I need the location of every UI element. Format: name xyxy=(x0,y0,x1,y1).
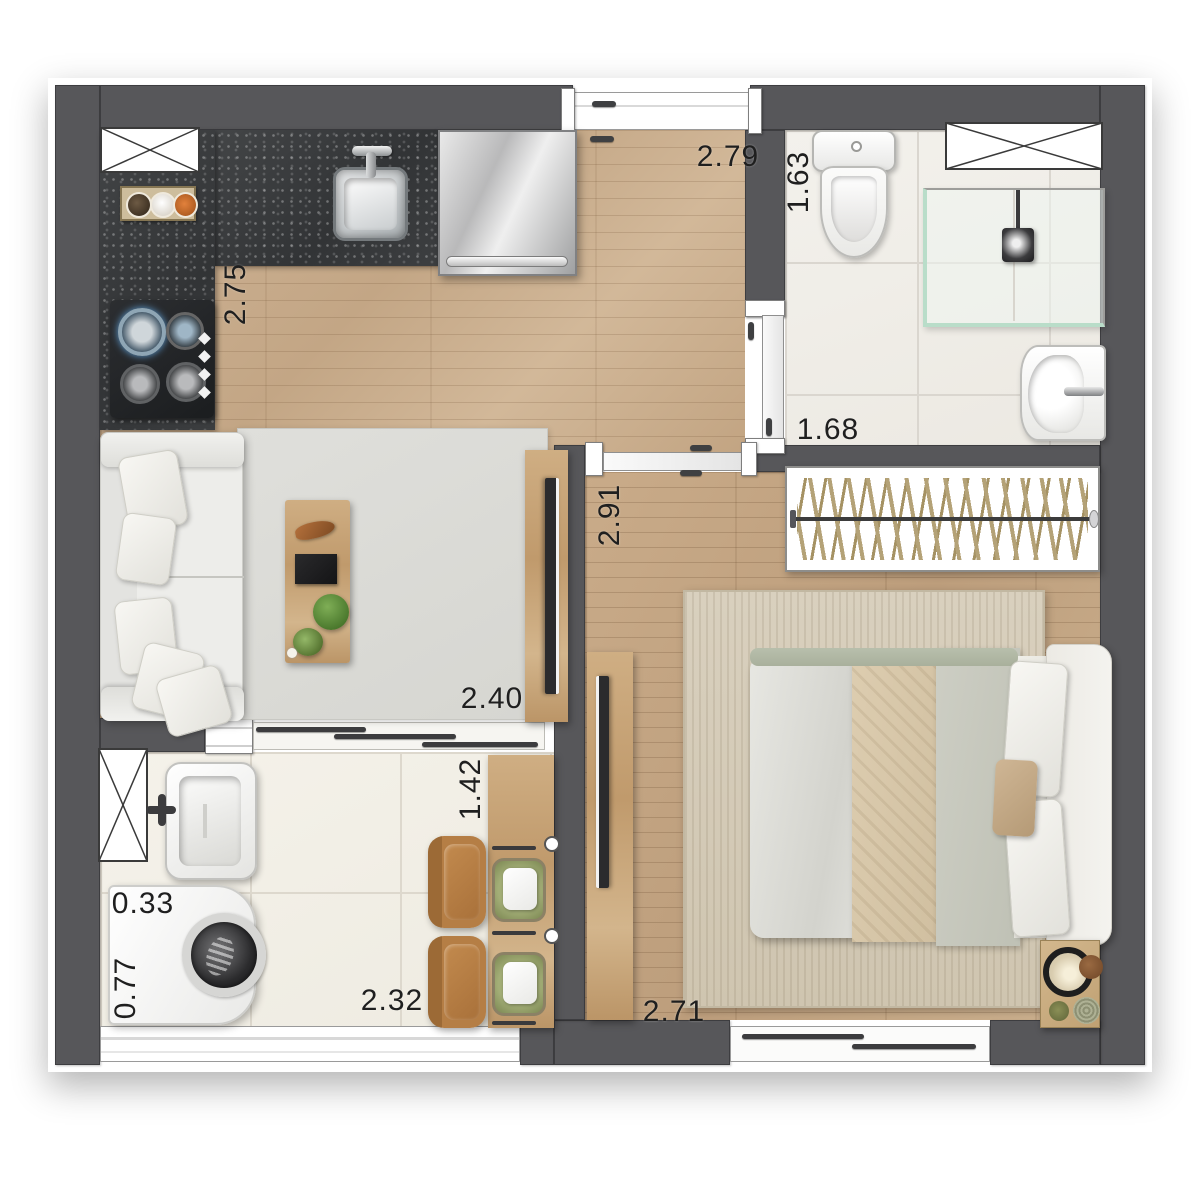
bedroom-tv xyxy=(596,676,609,888)
burner-front-right xyxy=(166,312,204,350)
spice-jar-3 xyxy=(173,192,198,218)
nightstand-box-small xyxy=(1049,1001,1069,1021)
burner-front-left-lit xyxy=(118,308,166,356)
dim-bath-width: 1.63 xyxy=(782,151,816,213)
spice-rack xyxy=(120,186,196,221)
bedroom-window-panel-1 xyxy=(742,1034,864,1039)
dim-balcony-width: 2.32 xyxy=(361,984,423,1018)
dim-kitchen-depth: 2.75 xyxy=(219,263,253,325)
utility-faucet-stem xyxy=(158,794,166,826)
balcony-door-panel-3 xyxy=(422,742,538,747)
entrance-door xyxy=(573,92,750,130)
coffee-table-book xyxy=(295,554,337,584)
placemat-1 xyxy=(492,858,546,922)
washing-machine-drum-highlight xyxy=(201,933,238,979)
sofa xyxy=(100,432,243,720)
refrigerator xyxy=(438,130,577,276)
entrance-door-post-left xyxy=(561,88,575,134)
shower-head xyxy=(1002,228,1034,262)
nightstand-box-large xyxy=(1073,997,1100,1024)
toilet-flush-button xyxy=(851,141,862,152)
bird-figurine xyxy=(294,518,336,542)
kitchen-sink-basin xyxy=(344,178,397,230)
nightstand-wood-bowl xyxy=(1079,955,1103,979)
bed-blanket-edge xyxy=(750,648,1018,666)
cutlery-middle xyxy=(492,931,536,935)
table-knob-1 xyxy=(544,836,560,852)
bathroom-shaft-window xyxy=(945,122,1103,170)
bedroom-tv-panel xyxy=(587,652,633,1020)
floor-plan: 2.79 1.63 2.75 1.68 2.91 2.40 1.42 0.33 … xyxy=(0,0,1200,1200)
living-tv xyxy=(545,478,559,694)
wall-left xyxy=(55,85,100,1065)
entrance-door-handle-outer xyxy=(592,101,616,107)
plate-1 xyxy=(503,868,537,910)
bedroom-door-handle-room xyxy=(680,470,702,476)
dim-hall-width: 2.79 xyxy=(697,140,759,174)
refrigerator-handle xyxy=(446,256,568,267)
utility-sink xyxy=(165,762,257,880)
utility-sink-basin xyxy=(179,776,241,866)
closet xyxy=(785,466,1100,572)
dining-table xyxy=(488,755,554,1028)
coffee-table-plant-small xyxy=(293,628,323,656)
bed-accent-pillow xyxy=(992,759,1038,837)
service-shaft-window xyxy=(98,748,148,862)
chair-1-seat xyxy=(444,844,480,920)
dim-service-width: 0.33 xyxy=(112,887,174,921)
toilet-seat xyxy=(831,176,877,242)
dining-chair-1 xyxy=(428,836,486,928)
bedroom-door-post-right xyxy=(741,442,757,476)
bathroom-faucet xyxy=(1064,387,1104,396)
cutlery-bottom xyxy=(492,1021,536,1025)
sofa-pillow-2 xyxy=(115,512,178,587)
kitchen-faucet-spout xyxy=(366,152,376,178)
balcony-door-panel-1 xyxy=(256,727,366,732)
dim-living-width: 2.40 xyxy=(461,682,523,716)
bathroom-door-handle-bottom xyxy=(766,418,772,436)
entrance-door-handle-inner xyxy=(590,136,614,142)
living-rug xyxy=(237,428,548,720)
plate-2 xyxy=(503,962,537,1004)
dim-bath-length: 1.68 xyxy=(797,413,859,447)
wall-top-left xyxy=(100,85,573,130)
bedroom-window-panel-2 xyxy=(852,1044,976,1049)
kitchen-sink xyxy=(333,167,408,241)
dim-bedroom-depth: 2.91 xyxy=(593,484,627,546)
shower-arm xyxy=(1016,190,1020,232)
placemat-2 xyxy=(492,952,546,1016)
bedroom-door-handle-hall xyxy=(690,445,712,451)
bathroom-door-handle-top xyxy=(748,322,754,340)
entrance-door-post-right xyxy=(748,88,762,134)
dim-bedroom-width: 2.71 xyxy=(643,995,705,1029)
balcony-door-panel-2 xyxy=(334,734,456,739)
gas-cooktop xyxy=(110,300,214,418)
living-tv-panel xyxy=(525,450,568,722)
dim-balcony-depth: 1.42 xyxy=(454,758,488,820)
cooktop-knob-2 xyxy=(198,350,211,363)
bed-duvet xyxy=(750,656,860,938)
utility-sink-divider xyxy=(203,804,207,838)
chair-2-seat xyxy=(444,944,480,1020)
coffee-table-plant xyxy=(313,594,349,630)
spice-jar-1 xyxy=(126,192,152,218)
cutlery-top xyxy=(492,846,536,850)
burner-back-left xyxy=(120,364,160,404)
bathroom-sink xyxy=(1020,345,1106,441)
coffee-table-flower xyxy=(287,648,297,658)
table-knob-2 xyxy=(544,928,560,944)
closet-rod-end-right xyxy=(1089,510,1099,528)
service-balcony-window xyxy=(100,1026,520,1062)
washing-machine-door xyxy=(182,913,266,997)
bedroom-door-post-left xyxy=(585,442,603,476)
coffee-table xyxy=(285,500,350,663)
kitchen-shaft-window xyxy=(100,127,200,173)
burner-back-right xyxy=(166,362,206,402)
dining-chair-2 xyxy=(428,936,486,1028)
bedroom-door xyxy=(603,452,743,471)
nightstand xyxy=(1040,940,1100,1028)
double-bed xyxy=(750,648,1112,946)
bed-quilt-runner xyxy=(852,652,940,942)
dim-service-depth: 0.77 xyxy=(109,957,143,1019)
closet-rod xyxy=(793,517,1092,521)
closet-rod-end-left xyxy=(790,510,796,528)
